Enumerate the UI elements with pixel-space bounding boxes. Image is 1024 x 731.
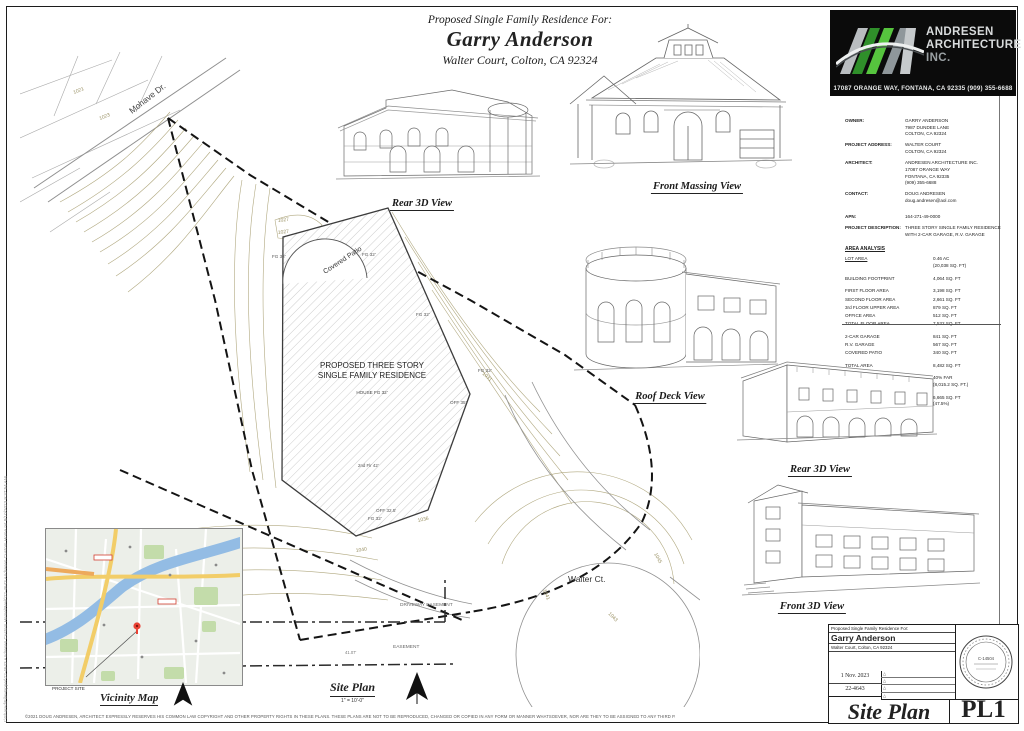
info-contact: CONTACT: DOUG ANDRESEN doug.andresen@aol… [845, 191, 1003, 204]
sheet-number: PL1 [949, 696, 1018, 724]
info-apn: APN: 164-271-49-0000 [845, 214, 1003, 221]
info-owner: OWNER: GARRY ANDERSON 7987 DUNDEE LANE C… [845, 118, 1003, 138]
vicinity-title-group: Vicinity Map [100, 688, 158, 706]
view-label-rear-3d-1: Rear 3D View [390, 198, 454, 211]
offset-label-1: OFF 35' [450, 400, 467, 405]
tb-project-line: Proposed Single Family Residence For: [829, 625, 955, 633]
fg-label: FG 32' [272, 254, 286, 259]
front-3d-view [736, 477, 991, 599]
firm-logo-icon [836, 18, 924, 80]
contact-label: CONTACT: [845, 191, 905, 204]
vicinity-map-image [46, 529, 240, 683]
view-label-front-massing: Front Massing View [651, 181, 743, 194]
info-project-address: PROJECT ADDRESS: WALTER COURT COLTON, CA… [845, 142, 1003, 155]
owner-label: OWNER: [845, 118, 905, 138]
svg-text:1045: 1045 [652, 552, 663, 565]
fg-label: FG 32' [362, 252, 376, 257]
north-arrow-icon [404, 672, 430, 704]
proposed-label-2: SINGLE FAMILY RESIDENCE [318, 371, 426, 380]
contact-value: DOUG ANDRESEN doug.andresen@aol.com [905, 191, 1003, 204]
revision-delta-icon: △ [881, 685, 955, 692]
revision-delta-icon: △ [881, 678, 955, 685]
tb-owner: Garry Anderson [829, 633, 955, 644]
project-address-value: WALTER COURT COLTON, CA 92324 [905, 142, 1003, 155]
info-architect: ARCHITECT: ANDRESEN ARCHITECTURE INC. 17… [845, 160, 1003, 187]
firm-name-line2: ARCHITECTURE [926, 39, 1022, 52]
svg-text:1040: 1040 [355, 546, 367, 554]
title-block: Proposed Single Family Residence For: Ga… [828, 624, 1019, 724]
proposed-label-1: PROPOSED THREE STORY [320, 361, 425, 370]
architect-value: ANDRESEN ARCHITECTURE INC. 17087 ORANGE … [905, 160, 1003, 187]
architect-label: ARCHITECT: [845, 160, 905, 187]
firm-address: 17087 ORANGE WAY, FONTANA, CA 92335 (909… [830, 85, 1016, 92]
apn-value: 164-271-49-0000 [905, 214, 1003, 221]
area-row: 3rd FLOOR UPPER AREA879 SQ. FT [845, 305, 1003, 312]
rear-3d-view-small [330, 80, 545, 198]
adjacent-subdivision-lines [20, 52, 180, 232]
description-value: THREE STORY SINGLE FAMILY RESIDENCE WITH… [905, 225, 1003, 238]
site-plan-scale: 1" = 10'-0" [330, 698, 375, 704]
front-massing-view [556, 24, 800, 182]
svg-text:1027: 1027 [278, 217, 290, 224]
area-row-total-floor: TOTAL FLOOR AREA7,532 SQ. FT [845, 321, 1003, 328]
second-floor-label: 2nd Flr 42' [358, 463, 379, 468]
view-label-rear-3d-2: Rear 3D View [788, 464, 852, 477]
site-plan-title-group: Site Plan 1" = 10'-0" [330, 680, 375, 704]
rear-3d-view-large [733, 348, 941, 462]
description-label: PROJECT DESCRIPTION: [845, 225, 905, 238]
area-row: BUILDING FOOTPRINT4,064 SQ. FT [845, 276, 1003, 283]
apn-label: APN: [845, 214, 905, 221]
view-label-roof-deck: Roof Deck View [633, 391, 706, 404]
area-analysis-title: AREA ANALYSIS [845, 246, 1003, 253]
driveway-easement-label: DRIVEWAY EASEMENT [400, 602, 453, 608]
firm-logo-block: ANDRESEN ARCHITECTURE INC. 17087 ORANGE … [830, 10, 1016, 96]
svg-text:1023: 1023 [99, 112, 112, 122]
easement-label: EASEMENT [393, 644, 419, 650]
tb-job-number: 22-4643 [829, 684, 881, 697]
drawing-sheet: Proposed Single Family Residence For: Ga… [0, 0, 1024, 731]
area-row: SECOND FLOOR AREA2,661 SQ. FT [845, 297, 1003, 304]
tb-date: 1 Nov. 2023 [829, 671, 881, 684]
owner-value: GARRY ANDERSON 7987 DUNDEE LANE COLTON, … [905, 118, 1003, 138]
sheet-title: Site Plan [829, 699, 949, 725]
area-row: OFFICE AREA512 SQ. FT [845, 313, 1003, 320]
vicinity-map [45, 528, 243, 686]
svg-text:1043: 1043 [607, 611, 619, 623]
firm-name-line3: INC. [926, 52, 1022, 65]
vicinity-north-arrow-icon [172, 682, 194, 709]
firm-name: ANDRESEN ARCHITECTURE INC. [926, 26, 1022, 66]
project-address-label: PROJECT ADDRESS: [845, 142, 905, 155]
svg-text:1021: 1021 [73, 86, 86, 96]
offset-label-2: OFF 32.5' [376, 508, 396, 513]
house-fg-label: HOUSE FG 32' [356, 390, 387, 395]
project-site-label: PROJECT SITE [52, 686, 85, 691]
walter-ct-label: Walter Ct. [568, 574, 605, 584]
svg-text:C-14504: C-14504 [978, 656, 995, 661]
copyright-notice: ©2021 DOUG ANDRESEN, ARCHITECT EXPRESSLY… [25, 714, 675, 719]
site-plan-title: Site Plan [330, 680, 375, 697]
svg-text:1036: 1036 [417, 516, 429, 524]
info-description: PROJECT DESCRIPTION: THREE STORY SINGLE … [845, 225, 1003, 238]
area-row: 2-CAR GARAGE841 SQ. FT [845, 334, 1003, 341]
firm-name-line1: ANDRESEN [926, 26, 1022, 39]
vicinity-map-title: Vicinity Map [100, 692, 158, 706]
area-row: LOT AREA0.46 AC (20,038 SQ. FT) [845, 256, 1003, 269]
file-path-strip: I:\Shared\FileHopper\22-4643 Andresen Cu… [3, 302, 8, 722]
fg-label: FG 32' [368, 516, 382, 521]
architect-stamp-seal: C-14504 [956, 626, 1016, 698]
dimension-label: 41.07' [345, 650, 356, 655]
area-row: FIRST FLOOR AREA3,198 SQ. FT [845, 288, 1003, 295]
svg-text:1027: 1027 [278, 229, 290, 236]
revision-delta-icon: △ [881, 671, 955, 678]
fg-label: FG 32' [416, 312, 430, 317]
mohave-dr-label: Mohave Dr. [127, 81, 167, 116]
view-label-front-3d: Front 3D View [778, 601, 846, 614]
tb-address: Walter Court, Colton, CA 92324 [829, 644, 955, 652]
